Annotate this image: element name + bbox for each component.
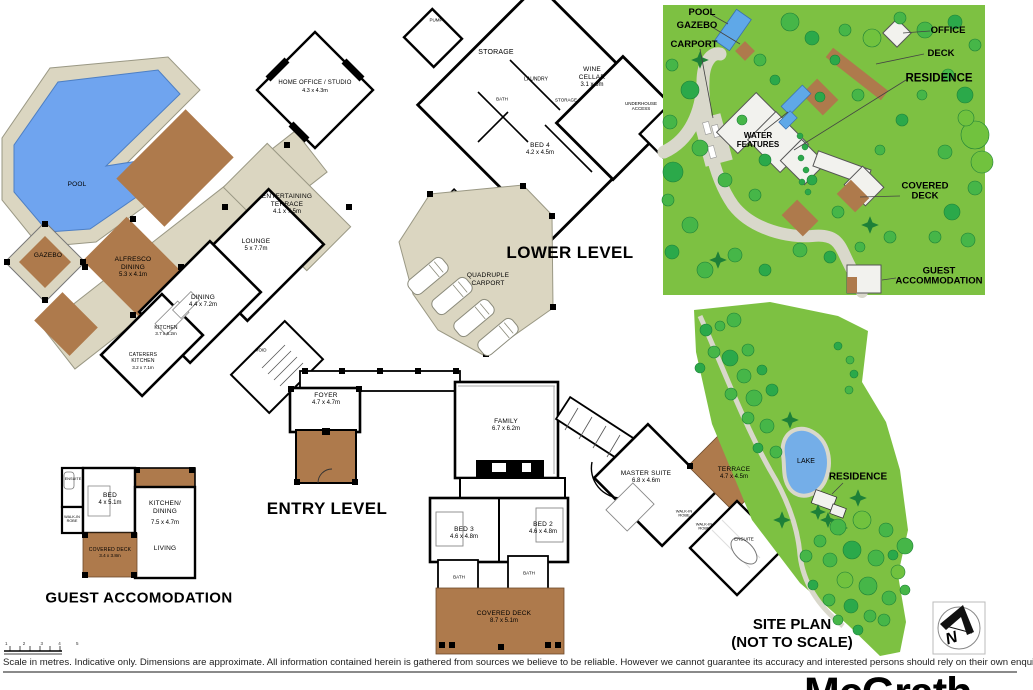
- room-label-bath-1: BATH: [453, 576, 465, 581]
- room-name: POOL: [68, 181, 87, 188]
- site-plan-title: SITE PLAN (NOT TO SCALE): [731, 616, 852, 652]
- room-dims: 4.6 x 4.8m: [450, 534, 478, 542]
- room-label-terrace: TERRACE4.7 x 4.5m: [718, 466, 750, 482]
- room-dims: 4 x 5.1m: [98, 500, 121, 508]
- scale-ticks: 1 2 3 4 5: [5, 641, 86, 646]
- room-name: WALK-IN ROBE: [696, 522, 713, 531]
- brand-logo: McGrath: [804, 672, 971, 690]
- room-name: STORAGE: [555, 98, 577, 103]
- room-label-caterers-kitchen: CATERERS KITCHEN3.2 x 7.1m: [129, 352, 157, 370]
- room-label-entertaining-terrace: ENTERTAINING TERRACE4.1 x 7.5m: [262, 193, 312, 217]
- room-label-bath-2: BATH: [523, 572, 535, 577]
- room-name: KITCHEN/ DINING: [149, 500, 181, 516]
- room-dims: 5 x 7.7m: [242, 246, 271, 254]
- room-label-family: FAMILY6.7 x 6.2m: [492, 418, 520, 434]
- room-dims: 3.1 x 6m: [579, 82, 606, 90]
- room-name: DINING: [189, 294, 217, 302]
- room-dims: 4.2 x 4.5m: [526, 150, 554, 158]
- room-name: TERRACE: [718, 466, 750, 474]
- room-name: ENSUITE: [65, 477, 81, 481]
- room-dims: 6.8 x 4.6m: [621, 478, 671, 486]
- guest-mini: [847, 265, 881, 293]
- room-label-storage: STORAGE: [478, 40, 514, 60]
- room-name: LAUNDRY: [524, 76, 548, 82]
- room-label-guest-robe: WALK-IN ROBE: [64, 515, 80, 523]
- room-label-pool: POOL: [68, 172, 87, 192]
- room-name: BED: [98, 492, 121, 500]
- room-label-gazebo: GAZEBO: [34, 243, 62, 263]
- room-label-underhouse-access: UNDERHOUSE ACCESS: [625, 102, 657, 112]
- entry-level-title: ENTRY LEVEL: [267, 499, 388, 519]
- room-dims: 4.4 x 7.2m: [189, 302, 217, 310]
- room-dims: 5.3 x 4.1m: [115, 272, 152, 280]
- room-label-storage-small: STORAGE: [555, 99, 577, 104]
- scale-bar: [4, 646, 62, 654]
- room-dims: 3.7 x 6.2m: [154, 331, 177, 337]
- room-name: WALK-IN ROBE: [676, 509, 693, 518]
- room-label-bed2: BED 24.6 x 4.8m: [529, 521, 557, 537]
- room-label-home-office: HOME OFFICE / STUDIO4.3 x 4.3m: [278, 80, 351, 94]
- site-label-water-features: WATER FEATURES: [737, 132, 780, 150]
- room-label-living: LIVING: [154, 536, 177, 556]
- room-name: QUADRUPLE CARPORT: [467, 272, 509, 288]
- room-name: CATERERS KITCHEN: [129, 352, 157, 365]
- room-name: VOID: [255, 348, 266, 353]
- room-name: LIVING: [154, 545, 177, 552]
- room-dims: 4.7 x 4.7m: [312, 400, 340, 408]
- room-name: MASTER SUITE: [621, 470, 671, 478]
- room-dims: 4.6 x 4.8m: [529, 529, 557, 537]
- room-label-quadruple-carport: QUADRUPLE CARPORT: [467, 272, 509, 288]
- room-name: FOYER: [312, 392, 340, 400]
- site-label-pool: POOL: [689, 8, 716, 18]
- room-name: STORAGE: [478, 49, 514, 56]
- room-dims: 7.5 x 4.7m: [149, 520, 181, 528]
- room-name: COVERED DECK: [477, 610, 531, 618]
- room-name: BED 3: [450, 526, 478, 534]
- room-label-pump: PUMP: [429, 19, 442, 24]
- room-label-bed3: BED 34.6 x 4.8m: [450, 526, 478, 542]
- carport-shape: [399, 183, 556, 358]
- room-name: UNDERHOUSE ACCESS: [625, 101, 657, 111]
- room-label-ensuite: ENSUITE: [734, 538, 754, 543]
- room-label-laundry: LAUNDRY: [524, 77, 548, 83]
- room-label-guest-ensuite: ENSUITE: [65, 477, 81, 481]
- room-label-foyer: FOYER4.7 x 4.7m: [312, 392, 340, 408]
- room-name: ALFRESCO DINING: [115, 256, 152, 272]
- room-name: LOUNGE: [242, 238, 271, 246]
- room-label-walk-in-robe-2: WALK-IN ROBE: [696, 523, 713, 532]
- lower-level-title: LOWER LEVEL: [506, 243, 633, 263]
- floorplan-sheet: POOL GAZEBO ALFRESCO DINING5.3 x 4.1m EN…: [0, 0, 1033, 690]
- room-name: ENTERTAINING TERRACE: [262, 193, 312, 209]
- site-label-residence: RESIDENCE: [905, 73, 972, 86]
- room-name: BATH: [496, 97, 508, 102]
- room-label-bath: BATH: [496, 98, 508, 103]
- room-dims: 4.3 x 4.3m: [278, 87, 351, 94]
- room-name: WINE CELLAR: [579, 66, 606, 82]
- site-plan-label-lake: LAKE: [797, 458, 815, 466]
- room-name: FAMILY: [492, 418, 520, 426]
- room-label-dining: DINING4.4 x 7.2m: [189, 294, 217, 310]
- room-dims: 8.7 x 5.1m: [477, 618, 531, 626]
- guest-accommodation-title: GUEST ACCOMODATION: [45, 590, 232, 607]
- room-label-walk-in-robe-1: WALK-IN ROBE: [676, 510, 693, 519]
- site-label-office: OFFICE: [931, 26, 966, 36]
- room-name: BED 4: [526, 142, 554, 150]
- room-label-wine-cellar: WINE CELLAR3.1 x 6m: [579, 66, 606, 90]
- room-dims: 4.1 x 7.5m: [262, 209, 312, 217]
- room-label-guest-bed: BED4 x 5.1m: [98, 492, 121, 508]
- site-label-deck: DECK: [928, 49, 955, 59]
- floorplan-drawing: [0, 0, 1033, 690]
- site-label-carport: CARPORT: [671, 40, 718, 50]
- site-label-guest-accommodation: GUEST ACCOMMODATION: [896, 267, 983, 288]
- room-name: WALK-IN ROBE: [64, 515, 80, 523]
- room-name: HOME OFFICE / STUDIO: [278, 80, 351, 88]
- room-label-lounge: LOUNGE5 x 7.7m: [242, 238, 271, 254]
- room-label-kitchen: KITCHEN3.7 x 6.2m: [154, 325, 177, 337]
- room-label-master-suite: MASTER SUITE6.8 x 4.6m: [621, 470, 671, 486]
- compass-icon: [933, 602, 985, 654]
- room-label-bed4: BED 44.2 x 4.5m: [526, 142, 554, 158]
- room-label-alfresco: ALFRESCO DINING5.3 x 4.1m: [115, 256, 152, 280]
- room-dims: 6.7 x 6.2m: [492, 426, 520, 434]
- room-label-covered-deck: COVERED DECK8.7 x 5.1m: [477, 610, 531, 626]
- room-dims: 3.2 x 7.1m: [129, 364, 157, 370]
- site-label-covered-deck: COVERED DECK: [902, 182, 949, 203]
- room-label-guest-covered-deck: COVERED DECK3.4 x 3.8m: [89, 547, 131, 559]
- room-label-void: VOID: [255, 349, 266, 354]
- room-name: PUMP: [429, 18, 442, 23]
- room-name: BATH: [523, 571, 535, 576]
- site-plan-label-residence: RESIDENCE: [829, 472, 887, 483]
- room-name: GAZEBO: [34, 252, 62, 259]
- room-dims: 3.4 x 3.8m: [89, 553, 131, 559]
- room-label-kitchen-dining: KITCHEN/ DINING7.5 x 4.7m: [149, 500, 181, 528]
- room-dims: 4.7 x 4.5m: [718, 474, 750, 482]
- site-label-gazebo: GAZEBO: [677, 21, 718, 31]
- room-name: BED 2: [529, 521, 557, 529]
- room-name: BATH: [453, 575, 465, 580]
- room-name: ENSUITE: [734, 537, 754, 542]
